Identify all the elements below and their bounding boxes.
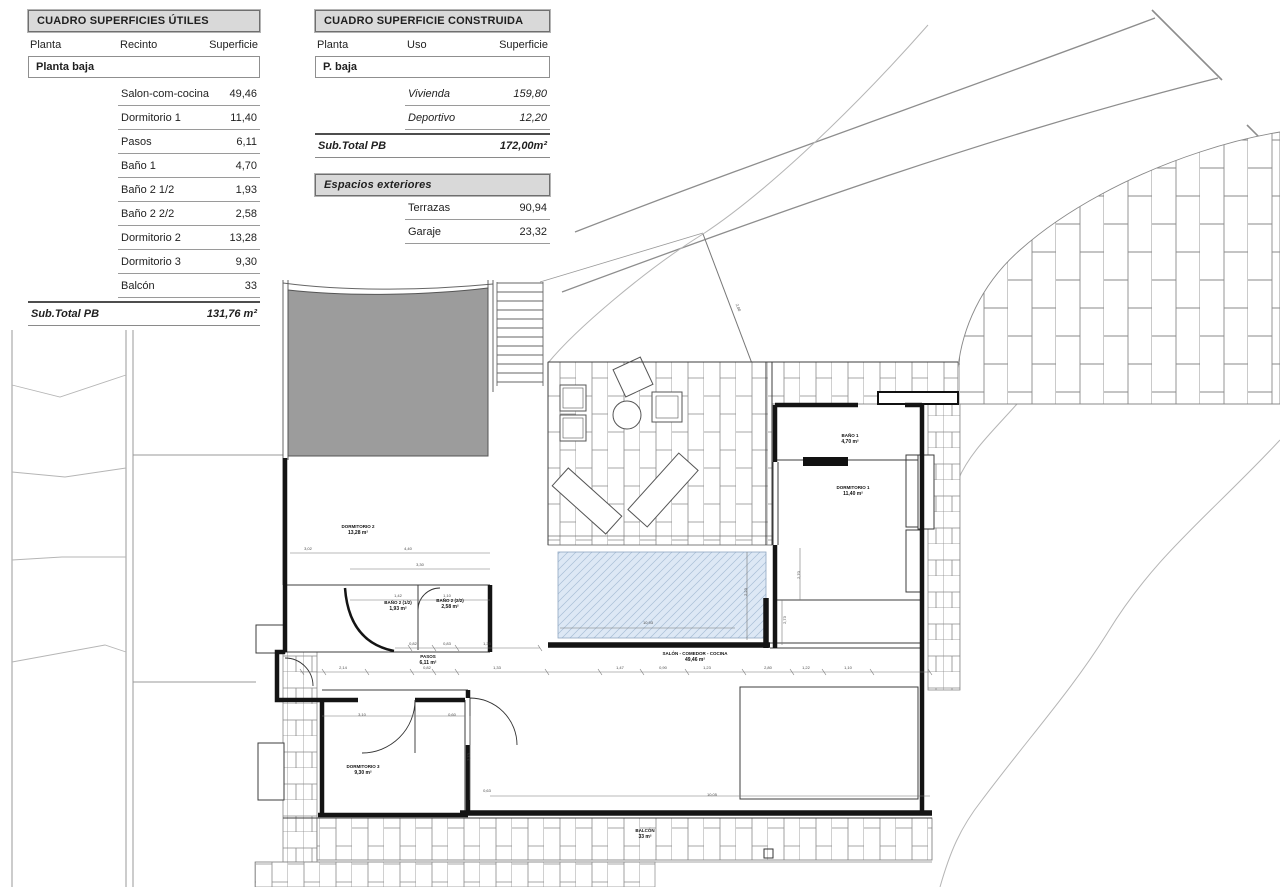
table-row: Balcón33: [118, 274, 260, 298]
subtotal-row: Sub.Total PB 131,76 m²: [28, 301, 260, 326]
paved-areas: [255, 132, 1280, 887]
subtotal-value: 131,76 m²: [207, 308, 257, 320]
room-label: DORMITORIO 39,30 m²: [347, 764, 380, 776]
dimension-label: 0,83: [443, 641, 452, 646]
dimension-label: 0,63: [483, 788, 492, 793]
round-table: [613, 401, 641, 429]
dimension-label: 10,05: [707, 792, 718, 797]
stairs: [497, 282, 543, 386]
room-label: BAÑO 2 (2/2)2,58 m²: [436, 597, 464, 610]
left-boundary: [12, 330, 283, 887]
dimension-label: 1,10: [844, 665, 853, 670]
room-label: SALÓN - COMEDOR - COCINA49,46 m²: [663, 649, 729, 663]
table-row: Baño 14,70: [118, 154, 260, 178]
dimension-label: 3,30: [416, 562, 425, 567]
table-column-headers: Planta Recinto Superficie: [28, 32, 260, 56]
dimension-label: 1,47: [616, 665, 625, 670]
table-row: Baño 2 1/21,93: [118, 178, 260, 202]
door-lintel: [803, 457, 848, 466]
balcony-paving: [317, 818, 932, 860]
col-uso: Uso: [407, 39, 499, 51]
table-rows: Terrazas90,94Garaje23,32: [315, 196, 550, 244]
dimension-label: 1,22: [802, 665, 811, 670]
dimension-label: 1,33: [493, 665, 502, 670]
room-label: BAÑO 14,70 m²: [841, 432, 859, 445]
table-row: Deportivo12,20: [405, 106, 550, 130]
kitchen-island: [740, 687, 918, 799]
dimension-label: 10,93: [643, 620, 654, 625]
entry-step: [258, 743, 284, 800]
table-espacios-exteriores: Espacios exteriores Terrazas90,94Garaje2…: [315, 174, 550, 244]
side-walk-paving: [928, 404, 960, 690]
curved-wall: [345, 588, 394, 651]
upper-terrace-paving: [958, 132, 1280, 404]
dimension-label: 2,14: [339, 665, 348, 670]
door-arc: [362, 700, 415, 753]
pool: [548, 536, 772, 638]
dimension-label: 1,33: [483, 641, 492, 646]
table-row: Pasos6,11: [118, 130, 260, 154]
table-rows: Salon-com-cocina49,46Dormitorio 111,40Pa…: [28, 82, 260, 298]
wardrobe: [906, 530, 921, 592]
subtotal-label: Sub.Total PB: [318, 140, 386, 152]
table-title: Espacios exteriores: [315, 174, 550, 196]
subtotal-row: Sub.Total PB 172,00m²: [315, 133, 550, 158]
dimension-label: 2,73: [782, 615, 787, 624]
table-row: Dormitorio 39,30: [118, 250, 260, 274]
table-row: Garaje23,32: [405, 220, 550, 244]
table-column-headers: Planta Uso Superficie: [315, 32, 550, 56]
col-superficie: Superficie: [209, 39, 258, 51]
col-planta: Planta: [317, 39, 407, 51]
group-row: P. baja: [315, 56, 550, 78]
dimension-label: 1,42: [394, 593, 403, 598]
subtotal-label: Sub.Total PB: [31, 308, 99, 320]
dimension-label: 2,73: [466, 752, 471, 761]
room-label: DORMITORIO 213,28 m²: [342, 524, 375, 536]
garage-roof: [283, 280, 493, 585]
table-row: Salon-com-cocina49,46: [118, 82, 260, 106]
dimension-label: 2,23: [743, 587, 748, 596]
table-row: Dormitorio 213,28: [118, 226, 260, 250]
subtotal-value: 172,00m²: [500, 140, 547, 152]
room-label: BAÑO 2 (1/2)1,93 m²: [384, 599, 412, 612]
dimension-label: 0,60: [448, 712, 457, 717]
col-planta: Planta: [30, 39, 120, 51]
table-superficie-construida: CUADRO SUPERFICIE CONSTRUIDA Planta Uso …: [315, 10, 550, 158]
dimension-label: 3,02: [304, 546, 313, 551]
dimension-label: 2,70: [796, 570, 801, 579]
table-row: Baño 2 2/22,58: [118, 202, 260, 226]
table-row: Vivienda159,80: [405, 82, 550, 106]
table-row: Dormitorio 111,40: [118, 106, 260, 130]
dimension-label: 0,82: [409, 641, 418, 646]
dimension-label: 1,23: [703, 665, 712, 670]
dimension-label: 3,10: [358, 712, 367, 717]
dimension-label: 2,00: [735, 303, 743, 313]
entry-step: [256, 625, 285, 653]
dimension-label: 1,10: [443, 593, 452, 598]
table-rows: Vivienda159,80Deportivo12,20: [315, 82, 550, 130]
door-arc: [470, 698, 517, 745]
table-title: CUADRO SUPERFICIES ÚTILES: [28, 10, 260, 32]
col-recinto: Recinto: [120, 39, 209, 51]
table-title: CUADRO SUPERFICIE CONSTRUIDA: [315, 10, 550, 32]
table-superficies-utiles: CUADRO SUPERFICIES ÚTILES Planta Recinto…: [28, 10, 260, 326]
col-superficie: Superficie: [499, 39, 548, 51]
table-row: Terrazas90,94: [405, 196, 550, 220]
group-row: Planta baja: [28, 56, 260, 78]
room-label: DORMITORIO 111,40 m²: [837, 485, 870, 497]
dimension-label: 0,90: [659, 665, 668, 670]
dimension-label: 2,80: [764, 665, 773, 670]
dimension-label: 0,82: [423, 665, 432, 670]
dimension-label: 4,40: [404, 546, 413, 551]
